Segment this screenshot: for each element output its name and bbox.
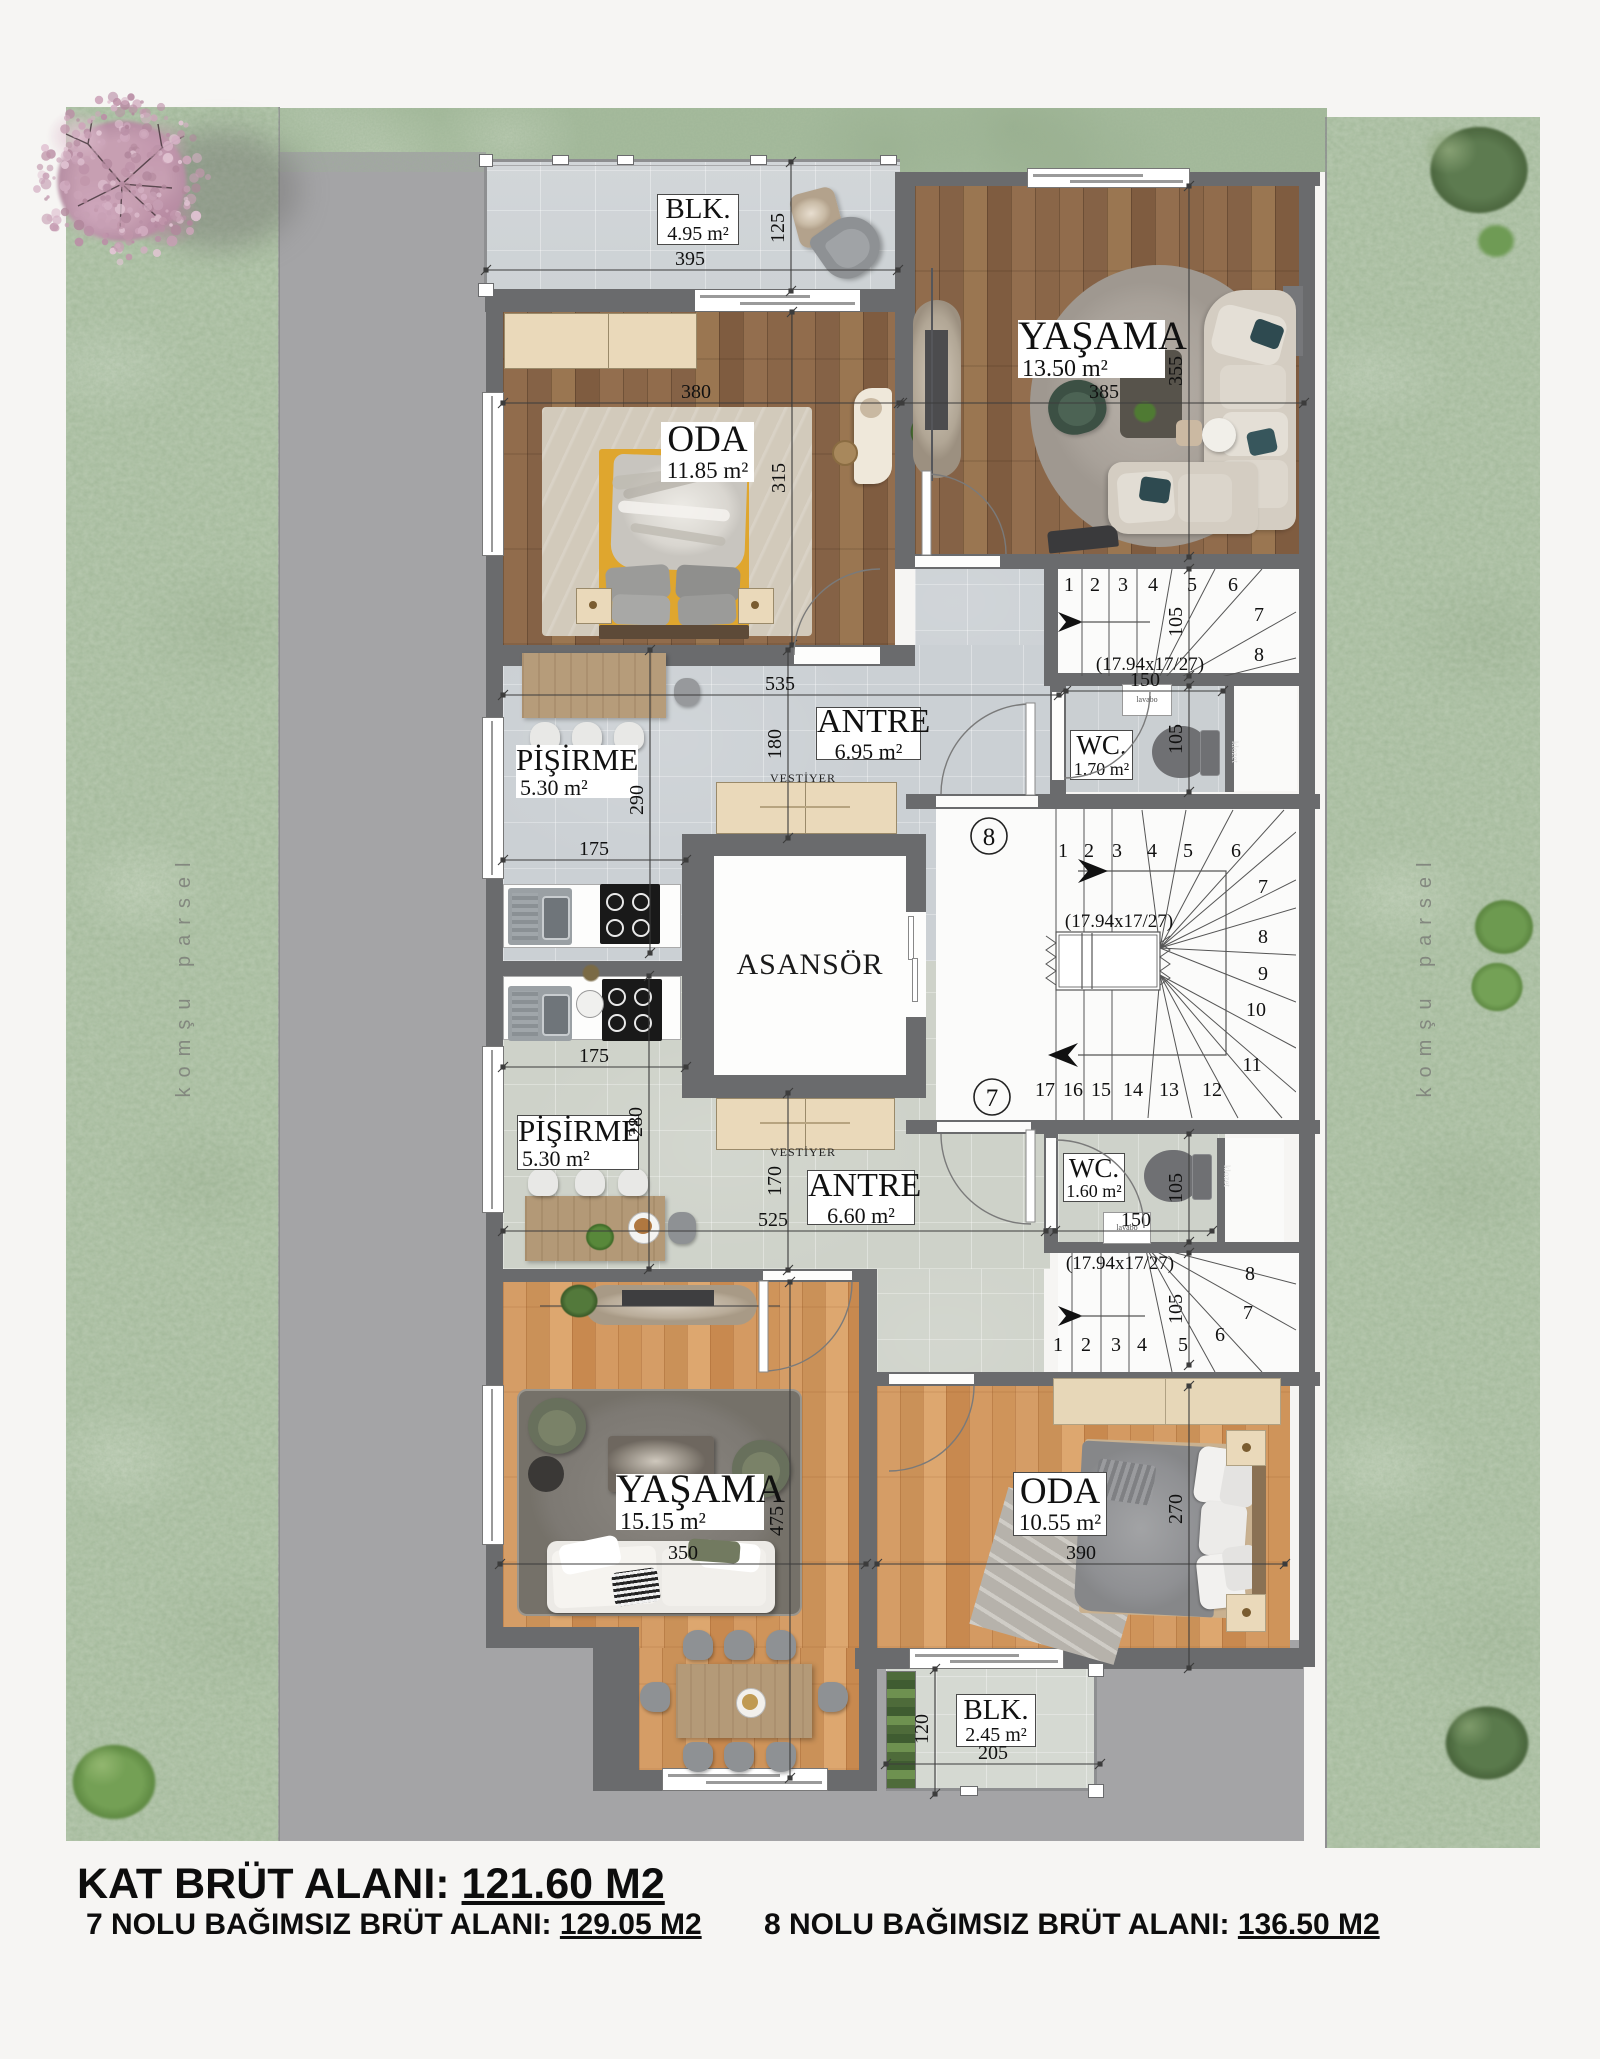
svg-text:390: 390 — [1066, 1542, 1096, 1564]
svg-text:4: 4 — [1137, 1334, 1147, 1356]
svg-text:6: 6 — [1228, 574, 1238, 596]
svg-text:1: 1 — [1053, 1334, 1063, 1356]
svg-text:6: 6 — [1231, 840, 1241, 862]
svg-text:6: 6 — [1215, 1324, 1225, 1346]
svg-text:125: 125 — [767, 213, 789, 243]
svg-text:7: 7 — [1243, 1302, 1253, 1324]
svg-text:13: 13 — [1159, 1079, 1179, 1101]
svg-text:5: 5 — [1187, 574, 1197, 596]
svg-text:9: 9 — [1258, 963, 1268, 985]
svg-text:105: 105 — [1165, 1173, 1187, 1203]
svg-text:270: 270 — [1165, 1494, 1187, 1524]
svg-text:395: 395 — [675, 248, 705, 270]
svg-text:170: 170 — [764, 1166, 786, 1196]
svg-text:8: 8 — [1254, 644, 1264, 666]
svg-text:8: 8 — [983, 824, 996, 851]
svg-text:120: 120 — [911, 1714, 933, 1744]
svg-text:(17.94x17/27): (17.94x17/27) — [1065, 911, 1173, 932]
svg-text:12: 12 — [1202, 1079, 1222, 1101]
svg-text:2: 2 — [1084, 840, 1094, 862]
svg-text:11: 11 — [1242, 1054, 1261, 1076]
svg-text:475: 475 — [766, 1506, 788, 1536]
svg-text:350: 350 — [668, 1542, 698, 1564]
svg-text:150: 150 — [1121, 1209, 1151, 1231]
svg-text:(17.94x17/27): (17.94x17/27) — [1066, 1253, 1174, 1274]
svg-text:14: 14 — [1123, 1079, 1143, 1101]
svg-text:7: 7 — [986, 1085, 999, 1112]
svg-text:535: 535 — [765, 673, 795, 695]
svg-text:(17.94x17/27): (17.94x17/27) — [1096, 654, 1204, 675]
svg-text:8: 8 — [1258, 926, 1268, 948]
svg-text:15: 15 — [1091, 1079, 1111, 1101]
svg-text:3: 3 — [1118, 574, 1128, 596]
svg-text:5: 5 — [1183, 840, 1193, 862]
svg-text:10: 10 — [1246, 999, 1266, 1021]
svg-text:380: 380 — [681, 381, 711, 403]
svg-text:105: 105 — [1165, 724, 1187, 754]
svg-text:105: 105 — [1165, 607, 1187, 637]
svg-text:1: 1 — [1064, 574, 1074, 596]
svg-text:5: 5 — [1178, 1334, 1188, 1356]
svg-text:7: 7 — [1258, 876, 1268, 898]
svg-text:1: 1 — [1058, 840, 1068, 862]
svg-text:4: 4 — [1148, 574, 1158, 596]
svg-text:205: 205 — [978, 1742, 1008, 1764]
svg-text:3: 3 — [1112, 840, 1122, 862]
svg-text:17: 17 — [1035, 1079, 1055, 1101]
svg-text:16: 16 — [1063, 1079, 1083, 1101]
svg-text:7: 7 — [1254, 604, 1264, 626]
svg-text:315: 315 — [768, 463, 790, 493]
svg-text:8: 8 — [1245, 1263, 1255, 1285]
svg-text:180: 180 — [764, 729, 786, 759]
svg-text:2: 2 — [1081, 1334, 1091, 1356]
svg-text:3: 3 — [1111, 1334, 1121, 1356]
svg-text:280: 280 — [625, 1107, 647, 1137]
svg-text:385: 385 — [1089, 381, 1119, 403]
svg-text:175: 175 — [579, 1045, 609, 1067]
svg-text:290: 290 — [626, 785, 648, 815]
svg-text:4: 4 — [1147, 840, 1157, 862]
svg-text:525: 525 — [758, 1209, 788, 1231]
svg-text:2: 2 — [1090, 574, 1100, 596]
svg-text:105: 105 — [1165, 1294, 1187, 1324]
svg-text:175: 175 — [579, 838, 609, 860]
svg-text:355: 355 — [1165, 356, 1187, 386]
